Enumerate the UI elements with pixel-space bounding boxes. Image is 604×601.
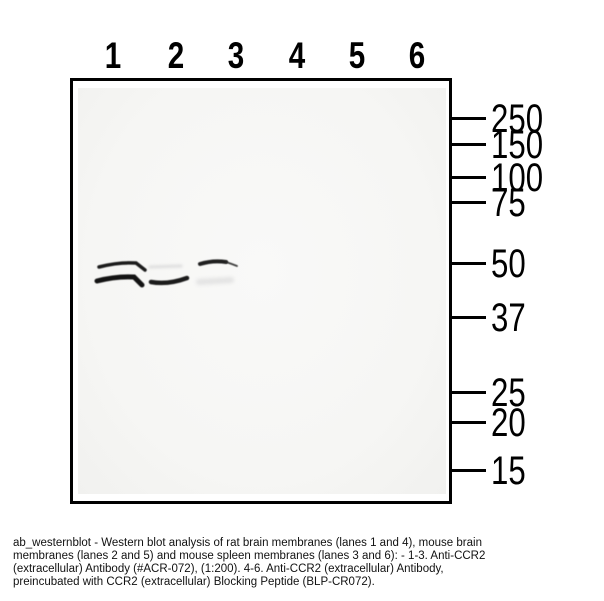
mw-tick-50	[452, 262, 486, 265]
mw-label-75: 75	[491, 183, 526, 223]
lane-number-1: 1	[105, 37, 121, 74]
mw-tick-150	[452, 143, 486, 146]
lane-number-2: 2	[168, 37, 184, 74]
lane-number-4: 4	[289, 37, 305, 74]
mw-label-50: 50	[491, 244, 526, 284]
mw-tick-250	[452, 117, 486, 120]
mw-tick-100	[452, 176, 486, 179]
mw-tick-75	[452, 201, 486, 204]
blot-membrane	[78, 88, 446, 494]
caption-line-2: membranes (lanes 2 and 5) and mouse sple…	[13, 550, 598, 563]
mw-tick-15	[452, 469, 486, 472]
blot-frame	[70, 78, 452, 504]
lane-number-5: 5	[349, 37, 365, 74]
western-blot-figure: 123456 250150100755037252015 ab_westernb…	[0, 0, 604, 601]
caption-line-1: ab_westernblot - Western blot analysis o…	[13, 537, 598, 550]
mw-tick-37	[452, 316, 486, 319]
mw-tick-20	[452, 421, 486, 424]
mw-label-15: 15	[491, 451, 526, 491]
mw-label-20: 20	[491, 403, 526, 443]
mw-label-37: 37	[491, 298, 526, 338]
caption-line-3: (extracellular) Antibody (#ACR-072), (1:…	[13, 563, 598, 576]
lane-number-3: 3	[228, 37, 244, 74]
figure-caption: ab_westernblot - Western blot analysis o…	[13, 537, 598, 589]
caption-line-4: preincubated with CCR2 (extracellular) B…	[13, 576, 598, 589]
lane-number-6: 6	[409, 37, 425, 74]
mw-tick-25	[452, 391, 486, 394]
